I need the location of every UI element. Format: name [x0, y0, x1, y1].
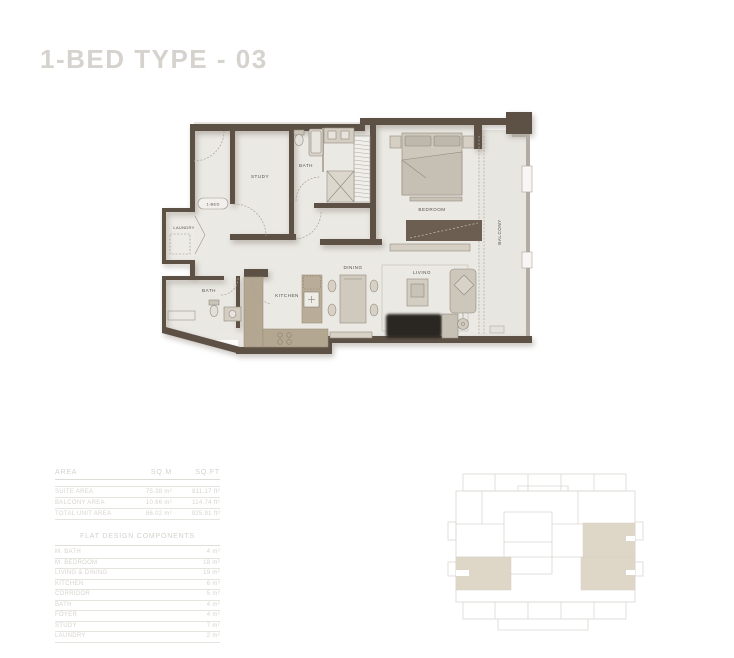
coffee-table-icon: [407, 279, 428, 306]
unit-tag: 1-BED: [198, 198, 228, 209]
area-header-name: AREA: [55, 469, 124, 476]
component-value: 2 m²: [180, 632, 220, 642]
component-row: CORRIDOR 5 m²: [55, 590, 220, 601]
unit-tag-label: 1-BED: [206, 202, 219, 207]
bed-icon: [390, 133, 474, 201]
page-title: 1-BED TYPE - 03: [40, 44, 268, 75]
area-row: BALCONY AREA 10.66 m² 114.74 ft²: [55, 498, 220, 509]
area-row: TOTAL UNIT AREA 86.02 m² 925.91 ft²: [55, 509, 220, 520]
key-plan-highlight: [456, 523, 635, 590]
sofa-icon: [386, 314, 458, 338]
components-table: M. BATH 4 m² M. BEDROOM 18 m² LIVING & D…: [55, 545, 220, 643]
component-row: BATH 4 m²: [55, 601, 220, 612]
room-label-living: LIVING: [413, 270, 431, 275]
component-name: M. BATH: [55, 548, 180, 558]
component-name: STUDY: [55, 622, 180, 632]
area-table: SUITE AREA 75.38 m² 811.17 ft² BALCONY A…: [55, 486, 220, 520]
room-label-laundry: LAUNDRY: [173, 225, 194, 230]
closet-icon: [354, 136, 370, 202]
floorplan: 1-BED STUDY BATH BEDROOM BALCONY LAUNDRY…: [160, 108, 540, 364]
components-table-title: FLAT DESIGN COMPONENTS: [55, 533, 220, 543]
area-header-sqm: SQ.M: [124, 469, 172, 476]
component-row: M. BATH 4 m²: [55, 548, 220, 559]
area-header-sqft: SQ.FT: [172, 469, 220, 476]
component-value: 4 m²: [180, 601, 220, 611]
room-label-bath-top: BATH: [299, 163, 313, 168]
component-value: 6 m²: [180, 580, 220, 590]
component-name: KITCHEN: [55, 580, 180, 590]
balcony-planter-icon: [490, 326, 504, 333]
area-row-sqm: 86.02 m²: [124, 509, 172, 519]
room-label-balcony: BALCONY: [497, 219, 502, 244]
component-row: LIVING & DINING 19 m²: [55, 569, 220, 580]
component-value: 4 m²: [180, 611, 220, 621]
component-value: 19 m²: [180, 569, 220, 579]
area-row-sqft: 811.17 ft²: [172, 487, 220, 497]
component-name: BATH: [55, 601, 180, 611]
vanity-sink-icon: [324, 128, 354, 143]
bathtub-icon: [309, 129, 323, 156]
room-label-study: STUDY: [251, 174, 269, 179]
sink-icon: [304, 292, 319, 307]
component-row: STUDY 7 m²: [55, 622, 220, 633]
component-name: CORRIDOR: [55, 590, 180, 600]
area-row-name: TOTAL UNIT AREA: [55, 509, 124, 519]
room-label-dining: DINING: [343, 265, 362, 270]
area-row-sqft: 114.74 ft²: [172, 498, 220, 508]
component-value: 4 m²: [180, 548, 220, 558]
toilet2-icon: [209, 300, 219, 317]
component-row: KITCHEN 6 m²: [55, 580, 220, 591]
component-row: FOYER 4 m²: [55, 611, 220, 622]
component-row: LAUNDRY 2 m²: [55, 632, 220, 643]
balcony-floor: [478, 130, 528, 338]
sideboard-icon: [330, 332, 372, 338]
vanity2-sink-icon: [224, 307, 241, 321]
room-label-kitchen: KITCHEN: [275, 293, 299, 298]
area-row-name: SUITE AREA: [55, 487, 124, 497]
component-value: 5 m²: [180, 590, 220, 600]
info-tables: AREA SQ.M SQ.FT SUITE AREA 75.38 m² 811.…: [55, 469, 220, 643]
component-value: 7 m²: [180, 622, 220, 632]
area-row: SUITE AREA 75.38 m² 811.17 ft²: [55, 487, 220, 498]
key-plan: [438, 462, 666, 634]
shower-icon: [327, 171, 354, 202]
room-label-bath-bottom: BATH: [202, 288, 216, 293]
component-value: 18 m²: [180, 559, 220, 569]
area-row-sqm: 10.66 m²: [124, 498, 172, 508]
component-name: LIVING & DINING: [55, 569, 180, 579]
armchair-icon: [450, 269, 476, 313]
bath-floor: [164, 278, 238, 334]
area-table-header: AREA SQ.M SQ.FT: [55, 469, 220, 480]
component-name: FOYER: [55, 611, 180, 621]
component-name: M. BEDROOM: [55, 559, 180, 569]
toilet-icon: [294, 130, 304, 146]
component-row: M. BEDROOM 18 m²: [55, 559, 220, 570]
area-row-name: BALCONY AREA: [55, 498, 124, 508]
area-row-sqft: 925.91 ft²: [172, 509, 220, 519]
room-label-bedroom: BEDROOM: [418, 207, 445, 212]
component-name: LAUNDRY: [55, 632, 180, 642]
area-row-sqm: 75.38 m²: [124, 487, 172, 497]
